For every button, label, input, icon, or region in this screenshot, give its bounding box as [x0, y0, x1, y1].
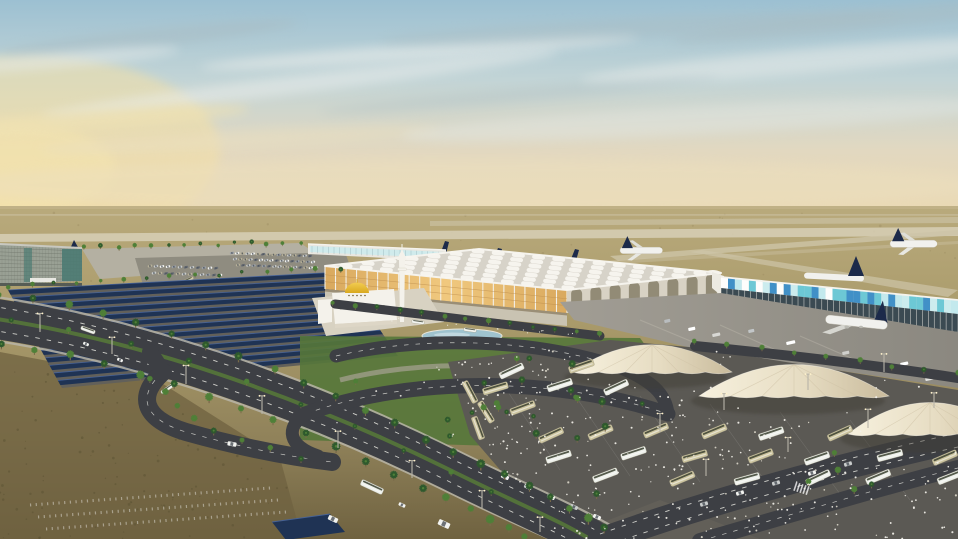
- airport-aerial-render: [0, 0, 958, 539]
- hotel-building: [0, 243, 82, 286]
- screenshot-root: Aerial dusk rendering of a new airport c…: [0, 0, 958, 539]
